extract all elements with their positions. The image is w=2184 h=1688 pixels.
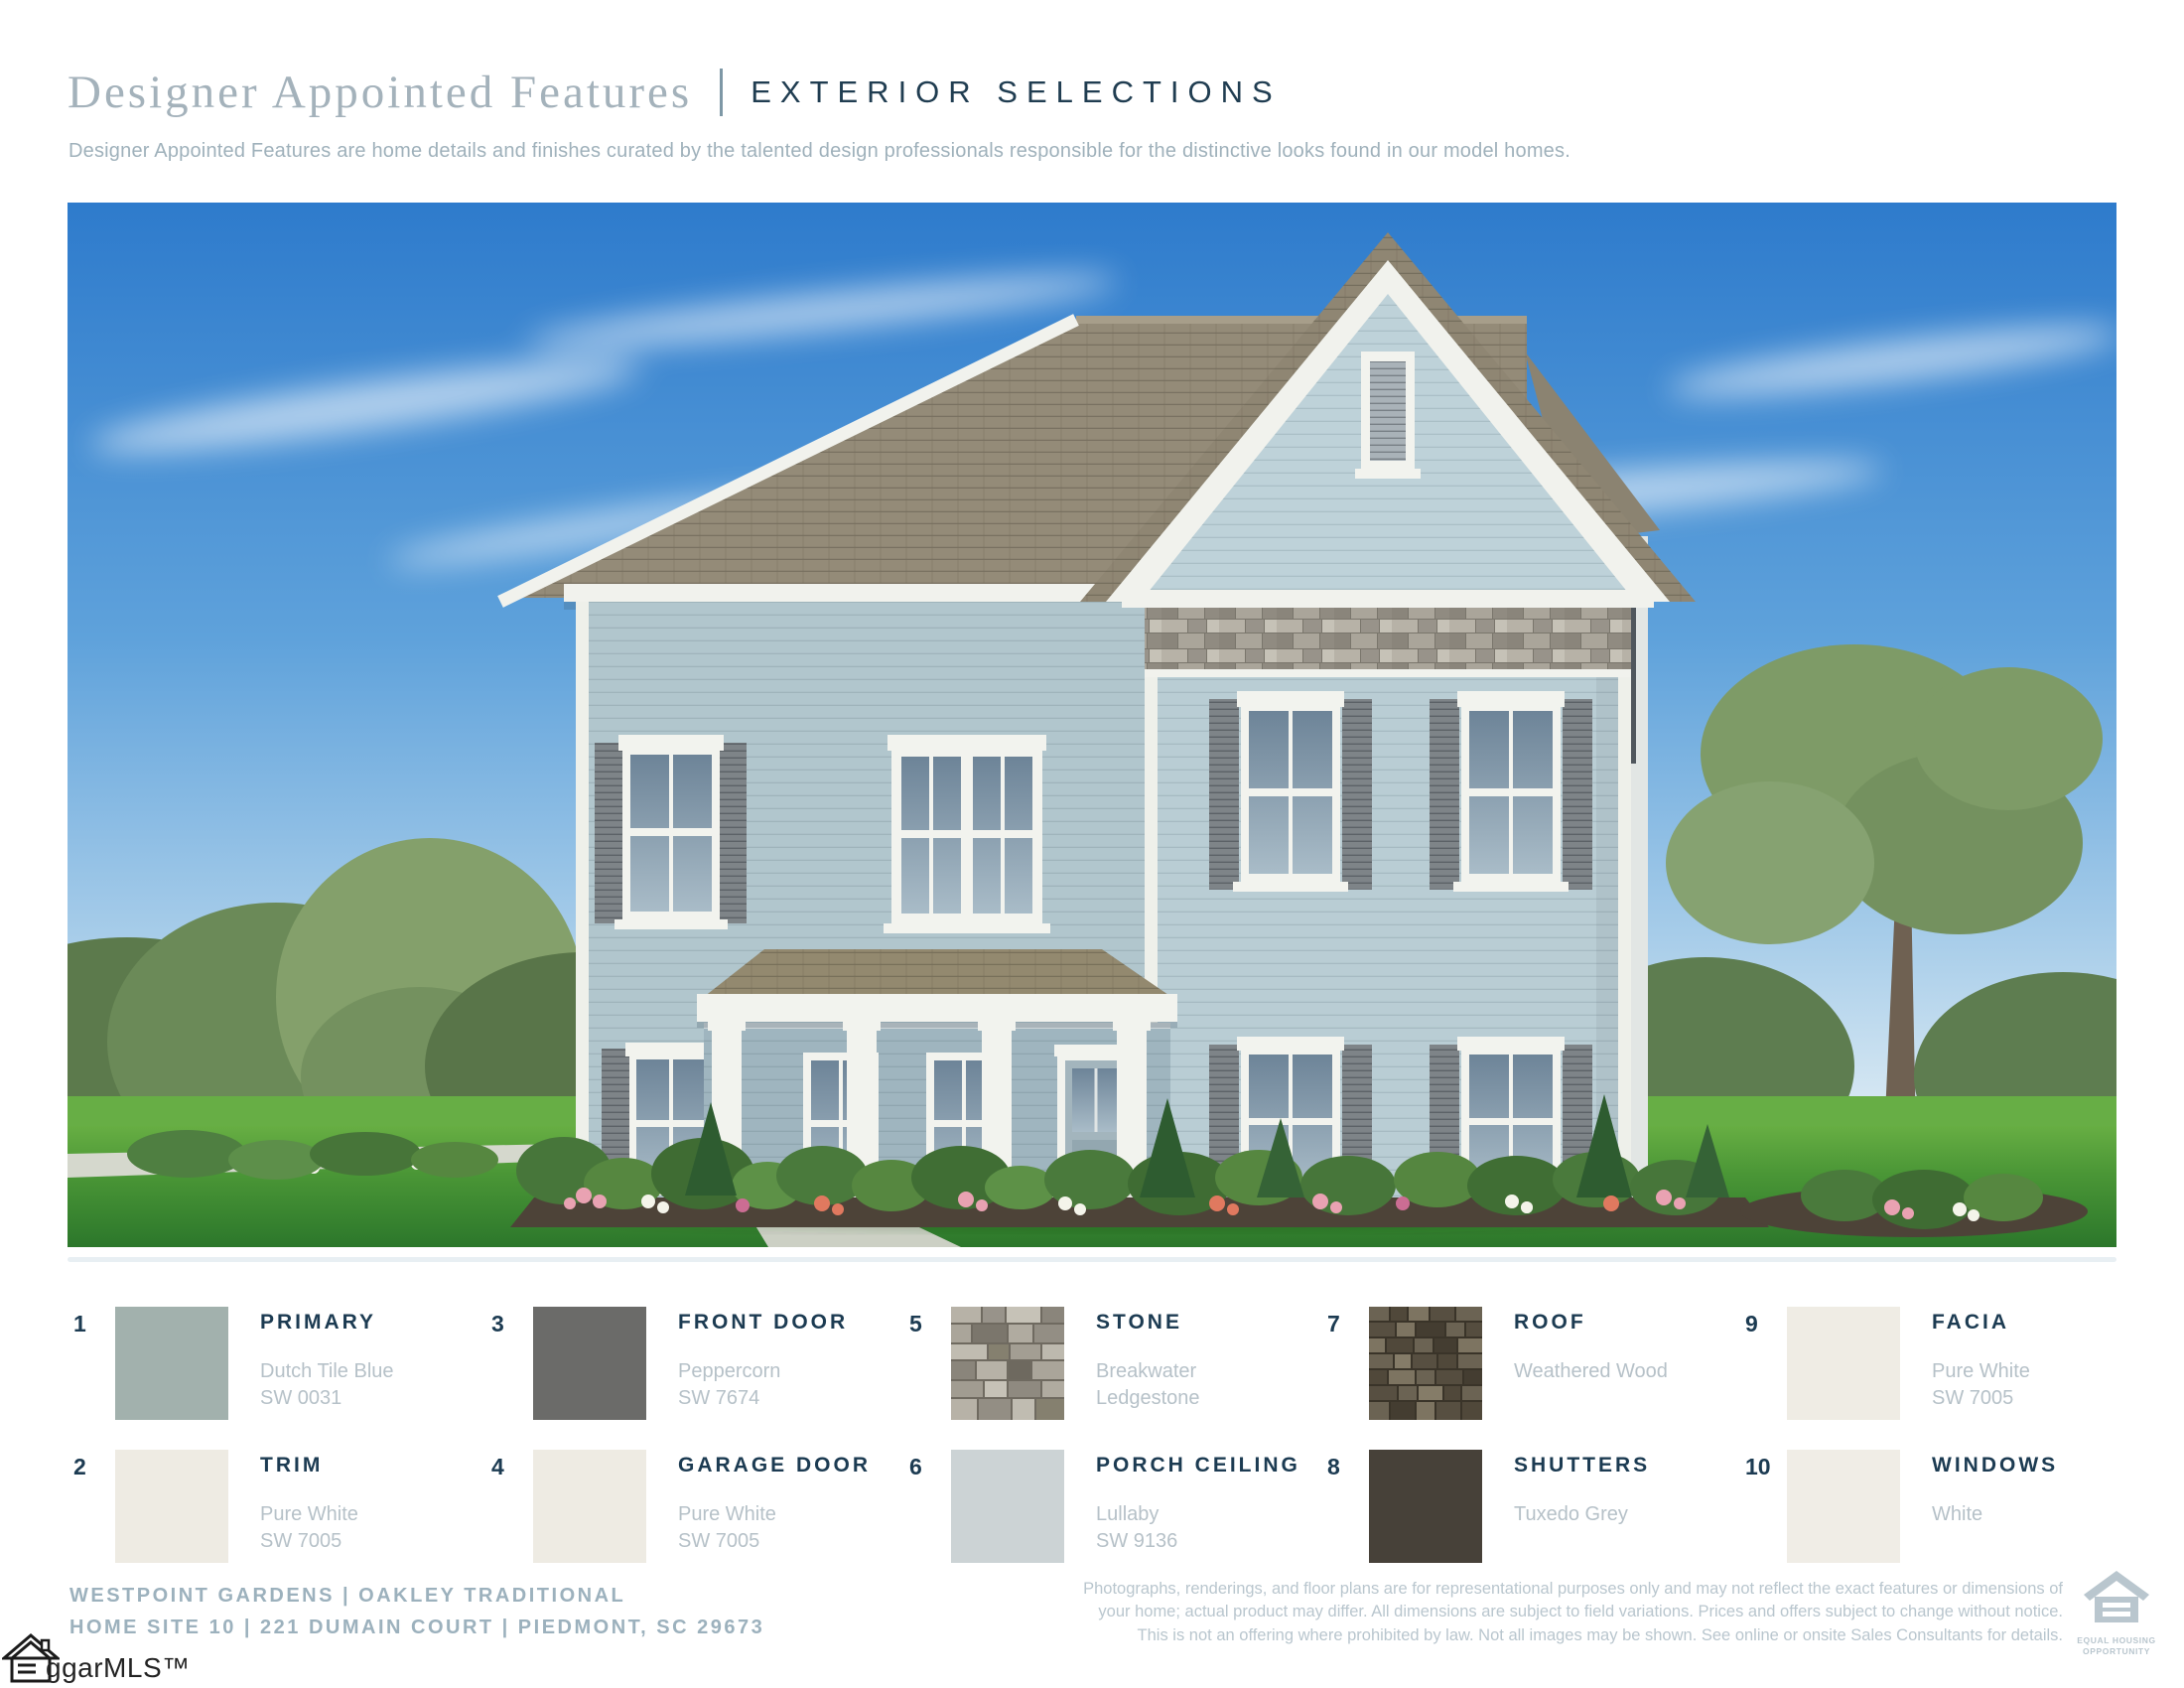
swatch-roof: 7 ROOF Weathered Wood — [1327, 1307, 1745, 1420]
disclaimer-line-2: your home; actual product may differ. Al… — [951, 1601, 2063, 1623]
window-upper-left — [595, 735, 747, 929]
swatch-value-line1: White — [1932, 1501, 2058, 1528]
swatch-porch-ceiling: 6 PORCH CEILING Lullaby SW 9136 — [909, 1450, 1327, 1563]
window-upper-center-double — [884, 735, 1050, 933]
swatch-front-door: 3 FRONT DOOR Peppercorn SW 7674 — [491, 1307, 909, 1420]
swatch-value-line1: Lullaby — [1096, 1501, 1300, 1528]
swatch-number: 2 — [73, 1450, 115, 1480]
swatch-label: SHUTTERS — [1514, 1454, 1650, 1477]
swatch-value-line1: Peppercorn — [678, 1358, 848, 1385]
page-header: Designer Appointed Features EXTERIOR SEL… — [68, 66, 1282, 119]
page-subtitle: Designer Appointed Features are home det… — [68, 140, 1570, 163]
swatch-label: FACIA — [1932, 1311, 2030, 1335]
swatch-color-chip — [1369, 1450, 1482, 1563]
swatch-color-chip — [115, 1307, 228, 1420]
stone-accent-band — [1145, 608, 1631, 669]
swatch-color-chip — [1787, 1307, 1900, 1420]
mls-logo: ggarMLS™ — [2, 1632, 191, 1684]
legal-disclaimer: Photographs, renderings, and floor plans… — [951, 1578, 2063, 1647]
swatch-number: 3 — [491, 1307, 533, 1337]
equal-housing-label-line2: OPPORTUNITY — [2071, 1646, 2162, 1657]
equal-housing-label-line1: EQUAL HOUSING — [2071, 1635, 2162, 1646]
swatch-number: 6 — [909, 1450, 951, 1480]
swatch-color-chip — [951, 1450, 1064, 1563]
swatch-value-line2: SW 7005 — [260, 1528, 358, 1555]
swatch-color-chip — [533, 1450, 646, 1563]
house-rendering-image — [68, 203, 2116, 1247]
swatch-number: 8 — [1327, 1450, 1369, 1480]
swatch-value-line1: Tuxedo Grey — [1514, 1501, 1650, 1528]
swatch-number: 7 — [1327, 1307, 1369, 1337]
disclaimer-line-3: This is not an offering where prohibited… — [951, 1624, 2063, 1647]
document-page: Designer Appointed Features EXTERIOR SEL… — [0, 0, 2184, 1688]
window-gable-upper-left — [1209, 691, 1372, 892]
roof-shingle-texture — [1369, 1307, 1482, 1420]
swatch-value-line1: Dutch Tile Blue — [260, 1358, 394, 1385]
swatch-number: 5 — [909, 1307, 951, 1337]
selection-swatch-grid: 1 PRIMARY Dutch Tile Blue SW 0031 2 TRIM… — [73, 1307, 2163, 1563]
swatch-label: FRONT DOOR — [678, 1311, 848, 1335]
swatch-label: PRIMARY — [260, 1311, 394, 1335]
section-divider-rule — [68, 1257, 2116, 1262]
swatch-label: TRIM — [260, 1454, 358, 1477]
window-gable-upper-right — [1430, 691, 1592, 892]
swatch-value-line2: SW 7005 — [1932, 1385, 2030, 1412]
swatch-number: 10 — [1745, 1450, 1787, 1480]
swatch-value-line1: Pure White — [678, 1501, 871, 1528]
swatch-label: STONE — [1096, 1311, 1200, 1335]
swatch-value-line2: SW 7005 — [678, 1528, 871, 1555]
swatch-color-chip — [115, 1450, 228, 1563]
swatch-windows: 10 WINDOWS White — [1745, 1450, 2163, 1563]
stone-texture-swatch — [951, 1307, 1064, 1420]
title-divider — [720, 69, 723, 116]
section-title: EXTERIOR SELECTIONS — [751, 74, 1281, 110]
swatch-primary: 1 PRIMARY Dutch Tile Blue SW 0031 — [73, 1307, 491, 1420]
swatch-label: GARAGE DOOR — [678, 1454, 871, 1477]
swatch-number: 4 — [491, 1450, 533, 1480]
house-rendering-svg — [68, 203, 2116, 1247]
stone-texture — [951, 1307, 1064, 1420]
mls-logo-text: ggarMLS™ — [46, 1652, 191, 1684]
swatch-trim: 2 TRIM Pure White SW 7005 — [73, 1450, 491, 1563]
roof-texture-swatch — [1369, 1307, 1482, 1420]
swatch-facia: 9 FACIA Pure White SW 7005 — [1745, 1307, 2163, 1420]
page-title: Designer Appointed Features — [68, 66, 692, 119]
swatch-label: ROOF — [1514, 1311, 1668, 1335]
swatch-value-line1: Breakwater — [1096, 1358, 1200, 1385]
swatch-value-line2: SW 0031 — [260, 1385, 394, 1412]
swatch-value-line2: Ledgestone — [1096, 1385, 1200, 1412]
swatch-shutters: 8 SHUTTERS Tuxedo Grey — [1327, 1450, 1745, 1563]
swatch-label: WINDOWS — [1932, 1454, 2058, 1477]
swatch-number: 9 — [1745, 1307, 1787, 1337]
equal-housing-logo: EQUAL HOUSING OPPORTUNITY — [2071, 1571, 2162, 1656]
swatch-color-chip — [533, 1307, 646, 1420]
disclaimer-line-1: Photographs, renderings, and floor plans… — [951, 1578, 2063, 1601]
swatch-label: PORCH CEILING — [1096, 1454, 1300, 1477]
swatch-value-line2: SW 9136 — [1096, 1528, 1300, 1555]
swatch-color-chip — [1787, 1450, 1900, 1563]
swatch-value-line1: Pure White — [1932, 1358, 2030, 1385]
community-info: WESTPOINT GARDENS | OAKLEY TRADITIONAL H… — [69, 1585, 764, 1639]
swatch-value-line2: SW 7674 — [678, 1385, 848, 1412]
community-name-line: WESTPOINT GARDENS | OAKLEY TRADITIONAL — [69, 1585, 764, 1608]
swatch-value-line1: Weathered Wood — [1514, 1358, 1668, 1385]
swatch-garage-door: 4 GARAGE DOOR Pure White SW 7005 — [491, 1450, 909, 1563]
equal-housing-house-icon — [2084, 1571, 2149, 1628]
gable-vent — [1355, 352, 1421, 479]
swatch-value-line1: Pure White — [260, 1501, 358, 1528]
swatch-stone: 5 STONE Breakwater Ledgestone — [909, 1307, 1327, 1420]
swatch-number: 1 — [73, 1307, 115, 1337]
